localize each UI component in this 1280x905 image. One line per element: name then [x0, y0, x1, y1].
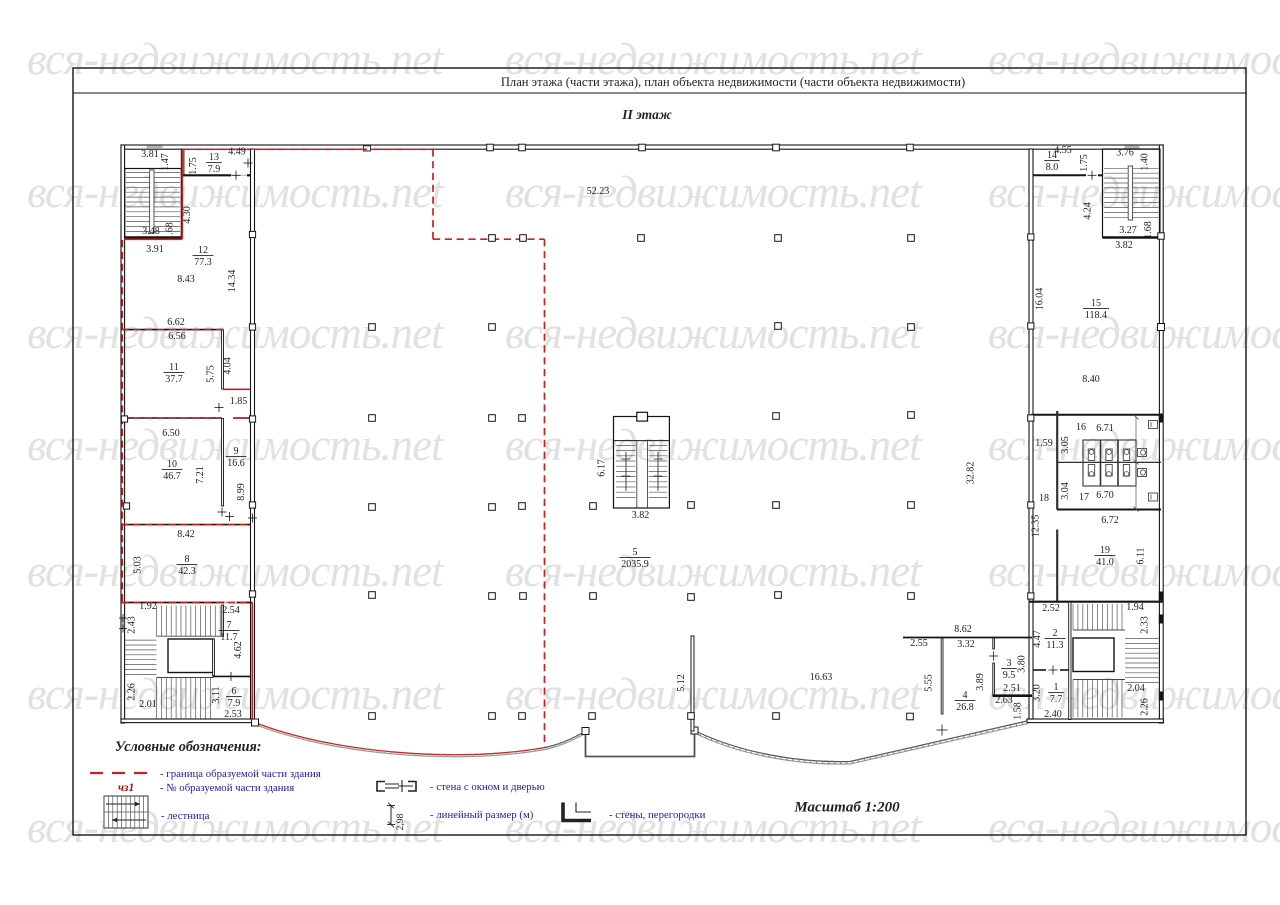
svg-text:5.03: 5.03	[133, 556, 144, 574]
svg-text:3.05: 3.05	[1060, 436, 1071, 454]
svg-text:- № образуемой части здания: - № образуемой части здания	[160, 782, 294, 794]
svg-text:16.63: 16.63	[810, 672, 833, 683]
svg-text:7.9: 7.9	[208, 164, 221, 175]
svg-text:6.17: 6.17	[597, 459, 608, 477]
svg-text:3.76: 3.76	[1116, 148, 1134, 159]
svg-text:1.85: 1.85	[230, 396, 248, 407]
svg-text:4.55: 4.55	[1054, 145, 1072, 156]
svg-text:2.43: 2.43	[127, 616, 138, 634]
svg-text:3.32: 3.32	[957, 639, 975, 650]
svg-text:2: 2	[1053, 628, 1058, 639]
svg-text:5.75: 5.75	[206, 365, 217, 383]
svg-text:16.6: 16.6	[227, 458, 245, 469]
svg-text:3.11: 3.11	[211, 686, 222, 703]
svg-text:8.43: 8.43	[177, 274, 195, 285]
svg-text:4.49: 4.49	[228, 147, 246, 158]
svg-text:1.68: 1.68	[1143, 221, 1154, 239]
svg-text:3.82: 3.82	[632, 510, 650, 521]
svg-text:Масштаб 1:200: Масштаб 1:200	[793, 800, 900, 816]
svg-text:11.3: 11.3	[1046, 640, 1063, 651]
svg-text:- граница образуемой части зда: - граница образуемой части здания	[160, 768, 321, 780]
svg-text:7: 7	[227, 620, 232, 631]
svg-text:77.3: 77.3	[194, 257, 212, 268]
svg-text:9.5: 9.5	[1003, 670, 1016, 681]
svg-text:2.33: 2.33	[1140, 616, 1151, 634]
svg-text:2.04: 2.04	[1127, 683, 1145, 694]
svg-text:4.04: 4.04	[223, 357, 234, 375]
svg-text:5.12: 5.12	[676, 674, 687, 692]
svg-text:1.47: 1.47	[160, 153, 171, 171]
svg-text:8.99: 8.99	[236, 483, 247, 501]
svg-text:4: 4	[963, 690, 968, 701]
svg-text:6.70: 6.70	[1096, 490, 1114, 501]
svg-text:- линейный размер (м): - линейный размер (м)	[430, 809, 534, 821]
svg-text:6.50: 6.50	[162, 428, 180, 439]
svg-text:1.92: 1.92	[139, 601, 157, 612]
svg-text:3.89: 3.89	[975, 673, 986, 691]
svg-text:8.40: 8.40	[1082, 374, 1100, 385]
svg-text:1.59: 1.59	[1035, 438, 1053, 449]
svg-text:1.75: 1.75	[1079, 154, 1090, 172]
svg-text:10: 10	[167, 459, 177, 470]
svg-text:3.27: 3.27	[1119, 225, 1137, 236]
svg-text:8.62: 8.62	[954, 624, 972, 635]
svg-text:12.35: 12.35	[1031, 515, 1042, 538]
svg-text:19: 19	[1100, 545, 1110, 556]
svg-text:- лестница: - лестница	[161, 810, 210, 822]
svg-text:46.7: 46.7	[163, 471, 181, 482]
svg-text:3.81: 3.81	[141, 149, 159, 160]
svg-text:8: 8	[185, 554, 190, 565]
svg-text:6.71: 6.71	[1096, 423, 1114, 434]
svg-text:2.40: 2.40	[1044, 709, 1062, 720]
svg-text:37.7: 37.7	[165, 374, 183, 385]
svg-text:4.62: 4.62	[233, 641, 244, 659]
svg-text:6.11: 6.11	[1136, 547, 1147, 564]
svg-text:26.8: 26.8	[956, 702, 974, 713]
svg-text:7.9: 7.9	[228, 698, 241, 709]
svg-text:- стена с окном и дверью: - стена с окном и дверью	[430, 781, 545, 793]
svg-text:17: 17	[1079, 492, 1089, 503]
svg-text:2.26: 2.26	[1140, 698, 1151, 716]
svg-text:2.01: 2.01	[139, 699, 157, 710]
svg-text:3.20: 3.20	[1032, 684, 1043, 702]
svg-text:18: 18	[1039, 493, 1049, 504]
svg-text:2.53: 2.53	[224, 709, 242, 720]
svg-text:14.34: 14.34	[227, 270, 238, 293]
svg-text:16.04: 16.04	[1035, 288, 1046, 311]
svg-text:9: 9	[234, 446, 239, 457]
svg-text:6.56: 6.56	[168, 331, 186, 342]
svg-text:2035.9: 2035.9	[621, 559, 649, 570]
svg-text:2.63: 2.63	[995, 695, 1013, 706]
svg-text:7.7: 7.7	[1050, 694, 1063, 705]
svg-text:3.82: 3.82	[1115, 240, 1133, 251]
svg-text:1.94: 1.94	[1126, 602, 1144, 613]
svg-text:План этажа (части этажа), план: План этажа (части этажа), план объекта н…	[501, 75, 965, 89]
svg-text:Условные обозначения:: Условные обозначения:	[115, 739, 262, 755]
svg-text:3.91: 3.91	[146, 244, 164, 255]
svg-text:2.51: 2.51	[1003, 683, 1021, 694]
svg-text:4.30: 4.30	[182, 206, 193, 224]
svg-text:6.62: 6.62	[167, 317, 185, 328]
svg-text:чз1: чз1	[118, 782, 134, 794]
svg-text:1.75: 1.75	[188, 157, 199, 175]
svg-text:1: 1	[1054, 682, 1059, 693]
svg-text:II этаж: II этаж	[621, 107, 672, 122]
svg-text:2,98: 2,98	[395, 813, 406, 830]
svg-text:3.04: 3.04	[1060, 482, 1071, 500]
svg-text:3: 3	[1007, 658, 1012, 669]
svg-text:13: 13	[209, 152, 219, 163]
svg-text:2.26: 2.26	[127, 683, 138, 701]
svg-text:52.23: 52.23	[587, 186, 610, 197]
svg-text:6.72: 6.72	[1101, 515, 1119, 526]
svg-text:1.40: 1.40	[1140, 153, 1151, 171]
svg-text:4.24: 4.24	[1083, 202, 1094, 220]
svg-text:16: 16	[1076, 422, 1086, 433]
svg-text:12: 12	[198, 245, 208, 256]
svg-text:2.55: 2.55	[910, 638, 928, 649]
svg-text:5.55: 5.55	[924, 674, 935, 692]
svg-text:7.21: 7.21	[195, 466, 206, 484]
svg-text:3.80: 3.80	[1017, 655, 1028, 673]
svg-text:15: 15	[1091, 298, 1101, 309]
svg-text:8.0: 8.0	[1046, 162, 1059, 173]
svg-text:2.52: 2.52	[1042, 603, 1060, 614]
svg-text:- стены, перегородки: - стены, перегородки	[609, 809, 706, 821]
svg-text:6: 6	[232, 686, 237, 697]
svg-text:1.68: 1.68	[165, 222, 176, 240]
svg-text:11: 11	[169, 362, 179, 373]
svg-text:41.0: 41.0	[1096, 557, 1114, 568]
svg-text:1.58: 1.58	[1013, 702, 1024, 720]
svg-text:118.4: 118.4	[1085, 310, 1107, 321]
svg-text:3.48: 3.48	[142, 226, 160, 237]
svg-text:8.42: 8.42	[177, 529, 195, 540]
svg-text:42.3: 42.3	[178, 566, 196, 577]
svg-text:5: 5	[633, 547, 638, 558]
svg-text:2.54: 2.54	[222, 605, 240, 616]
svg-text:32.82: 32.82	[966, 462, 977, 485]
svg-text:4.47: 4.47	[1032, 630, 1043, 648]
